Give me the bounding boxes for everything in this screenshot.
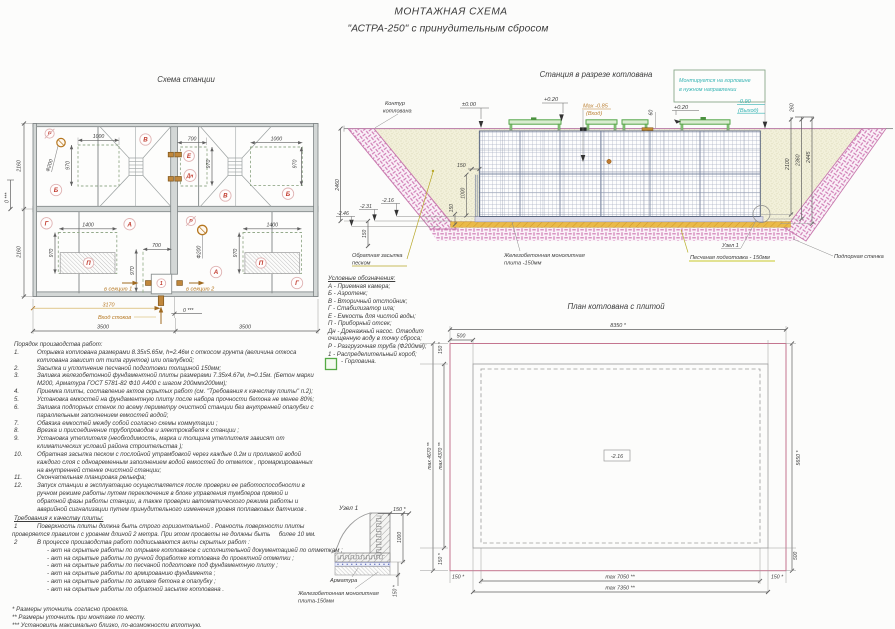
- svg-text:Дн: Дн: [186, 173, 194, 179]
- svg-text:А: А: [213, 269, 219, 276]
- svg-text:Контур: Контур: [385, 101, 405, 107]
- svg-text:970: 970: [49, 249, 55, 258]
- svg-text:-2.16: -2.16: [611, 454, 623, 460]
- svg-text:max 4670 **: max 4670 **: [427, 441, 433, 469]
- svg-text:котлована: котлована: [383, 109, 412, 115]
- svg-text:Max -0.85: Max -0.85: [583, 104, 609, 110]
- svg-text:2160: 2160: [17, 246, 23, 259]
- svg-text:В: В: [143, 137, 148, 144]
- svg-text:970: 970: [293, 160, 299, 169]
- svg-text:260: 260: [790, 103, 796, 113]
- svg-text:3500: 3500: [97, 325, 109, 331]
- svg-text:Обратная засыпка: Обратная засыпка: [352, 253, 403, 259]
- svg-text:3500: 3500: [239, 325, 251, 331]
- svg-text:Подпорная стенка: Подпорная стенка: [834, 254, 884, 260]
- svg-text:(Вход): (Вход): [586, 111, 602, 117]
- svg-text:max 4370 **: max 4370 **: [438, 441, 444, 469]
- svg-text:700: 700: [188, 136, 197, 142]
- svg-text:Станция в разрезе котлована: Станция в разрезе котлована: [540, 70, 653, 79]
- svg-text:±0.00: ±0.00: [462, 102, 477, 108]
- svg-text:П: П: [86, 260, 91, 267]
- svg-text:2360: 2360: [796, 154, 802, 167]
- svg-text:План котлована с плитой: План котлована с плитой: [567, 302, 665, 311]
- svg-text:2460: 2460: [335, 179, 341, 192]
- svg-text:0 ***: 0 ***: [183, 308, 194, 314]
- svg-text:"АСТРА-250" с принудительным с: "АСТРА-250" с принудительным сбросом: [348, 23, 549, 35]
- svg-text:60: 60: [649, 110, 655, 116]
- svg-text:Монтируется на горловине: Монтируется на горловине: [679, 78, 751, 84]
- svg-text:150 *: 150 *: [452, 575, 465, 581]
- svg-text:1000: 1000: [93, 134, 105, 140]
- svg-text:Песчаная подготовка - 150мм: Песчаная подготовка - 150мм: [690, 255, 770, 261]
- svg-text:150: 150: [449, 204, 455, 213]
- svg-text:в секцию 1: в секцию 1: [104, 286, 132, 292]
- svg-text:5650 *: 5650 *: [796, 450, 802, 466]
- svg-text:МОНТАЖНАЯ СХЕМА: МОНТАЖНАЯ СХЕМА: [394, 7, 507, 18]
- svg-text:Узел 1: Узел 1: [338, 505, 359, 512]
- svg-text:3170: 3170: [103, 303, 115, 309]
- svg-text:Узел 1: Узел 1: [721, 243, 739, 249]
- svg-text:500: 500: [793, 551, 799, 560]
- svg-text:Железобетонная монолитная: Железобетонная монолитная: [297, 591, 379, 597]
- svg-text:Ф200: Ф200: [197, 246, 203, 259]
- svg-text:в секцию 2: в секцию 2: [186, 286, 215, 292]
- svg-text:1400: 1400: [266, 223, 278, 229]
- svg-text:150: 150: [362, 229, 368, 238]
- svg-text:-2.16: -2.16: [382, 198, 394, 204]
- svg-text:Вход стоков: Вход стоков: [98, 315, 131, 321]
- svg-text:в нужном направлении: в нужном направлении: [679, 87, 736, 93]
- svg-text:8350 *: 8350 *: [610, 323, 626, 329]
- svg-text:Схема станции: Схема станции: [157, 75, 215, 84]
- svg-text:970: 970: [206, 160, 212, 169]
- svg-text:150 *: 150 *: [438, 341, 444, 354]
- svg-text:плита -150мм: плита -150мм: [504, 261, 542, 267]
- svg-text:150 *: 150 *: [771, 575, 784, 581]
- svg-text:песком: песком: [352, 261, 371, 267]
- svg-text:150 *: 150 *: [393, 584, 399, 597]
- svg-text:плита-150мм: плита-150мм: [298, 599, 334, 605]
- svg-text:1000: 1000: [271, 136, 283, 142]
- svg-text:150: 150: [457, 163, 466, 169]
- svg-text:700: 700: [152, 243, 161, 249]
- svg-text:Арматура: Арматура: [329, 578, 357, 584]
- svg-text:Б: Б: [54, 187, 59, 194]
- svg-text:Б: Б: [286, 191, 291, 198]
- svg-text:150 *: 150 *: [438, 552, 444, 565]
- svg-text:2100: 2100: [785, 158, 791, 171]
- svg-text:1000: 1000: [460, 187, 466, 198]
- svg-text:А: А: [126, 221, 132, 228]
- svg-text:2160: 2160: [17, 160, 23, 173]
- svg-text:-2.31: -2.31: [360, 204, 372, 210]
- svg-text:-2.46: -2.46: [337, 211, 349, 217]
- svg-text:500: 500: [457, 334, 466, 340]
- svg-text:2445: 2445: [806, 151, 812, 164]
- svg-text:1000: 1000: [397, 532, 403, 543]
- svg-text:+0.20: +0.20: [544, 97, 559, 103]
- svg-text:П: П: [259, 260, 264, 267]
- svg-text:Железобетонная монолитная: Железобетонная монолитная: [503, 253, 585, 259]
- svg-text:970: 970: [130, 266, 136, 275]
- svg-text:В: В: [223, 193, 228, 200]
- svg-text:max 7050 **: max 7050 **: [605, 575, 635, 581]
- svg-text:1400: 1400: [82, 223, 94, 229]
- svg-text:max 7350 **: max 7350 **: [605, 586, 635, 592]
- svg-text:970: 970: [66, 161, 72, 170]
- svg-text:970: 970: [233, 249, 239, 258]
- svg-text:0 ***: 0 ***: [5, 192, 11, 203]
- svg-text:1: 1: [160, 281, 163, 287]
- svg-text:+0.20: +0.20: [674, 105, 689, 111]
